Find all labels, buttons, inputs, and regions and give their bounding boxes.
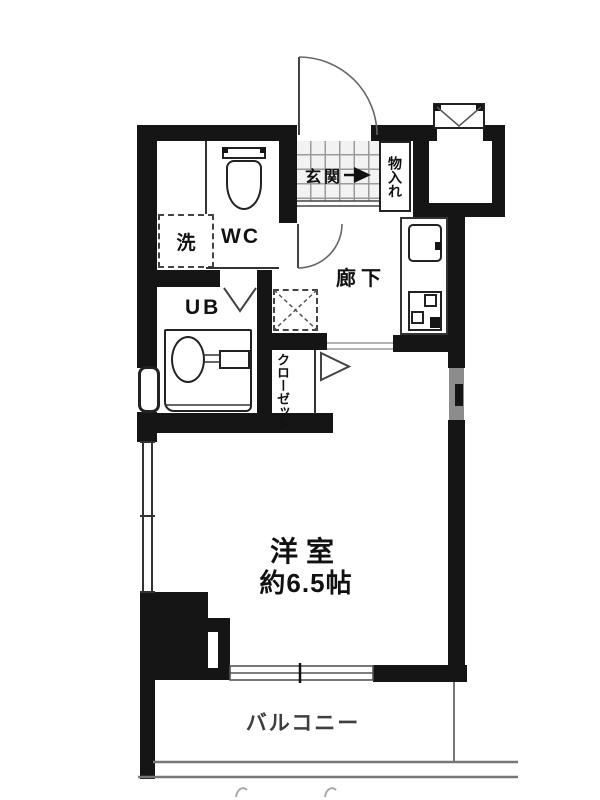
entrance-door-arc — [299, 57, 377, 135]
cropped-glyph-mark-2 — [325, 788, 336, 797]
linework-overlay — [0, 0, 600, 800]
genkan-step-edge — [297, 201, 379, 206]
fridge-x-mark — [274, 290, 317, 330]
balcony-label: バルコニー — [203, 707, 403, 737]
closet-label: クローゼット — [274, 353, 291, 409]
wc-label: WC — [221, 225, 260, 249]
closet-folding-door — [321, 353, 349, 380]
main-room-size: 約6.5帖 — [196, 563, 416, 600]
bath-folding-door — [224, 288, 256, 311]
genkan-label: 玄関 — [305, 163, 343, 187]
bathtub-connector — [204, 355, 220, 362]
genkan-arrow — [354, 167, 371, 183]
hallway-label: 廊下 — [336, 262, 386, 291]
floor-plan: 物入れ 洗 — [0, 0, 600, 800]
room-threshold — [327, 343, 393, 349]
bath-label: UB — [185, 296, 221, 320]
nook-hatch-v — [437, 107, 481, 126]
cropped-glyph-mark-1 — [236, 788, 247, 797]
